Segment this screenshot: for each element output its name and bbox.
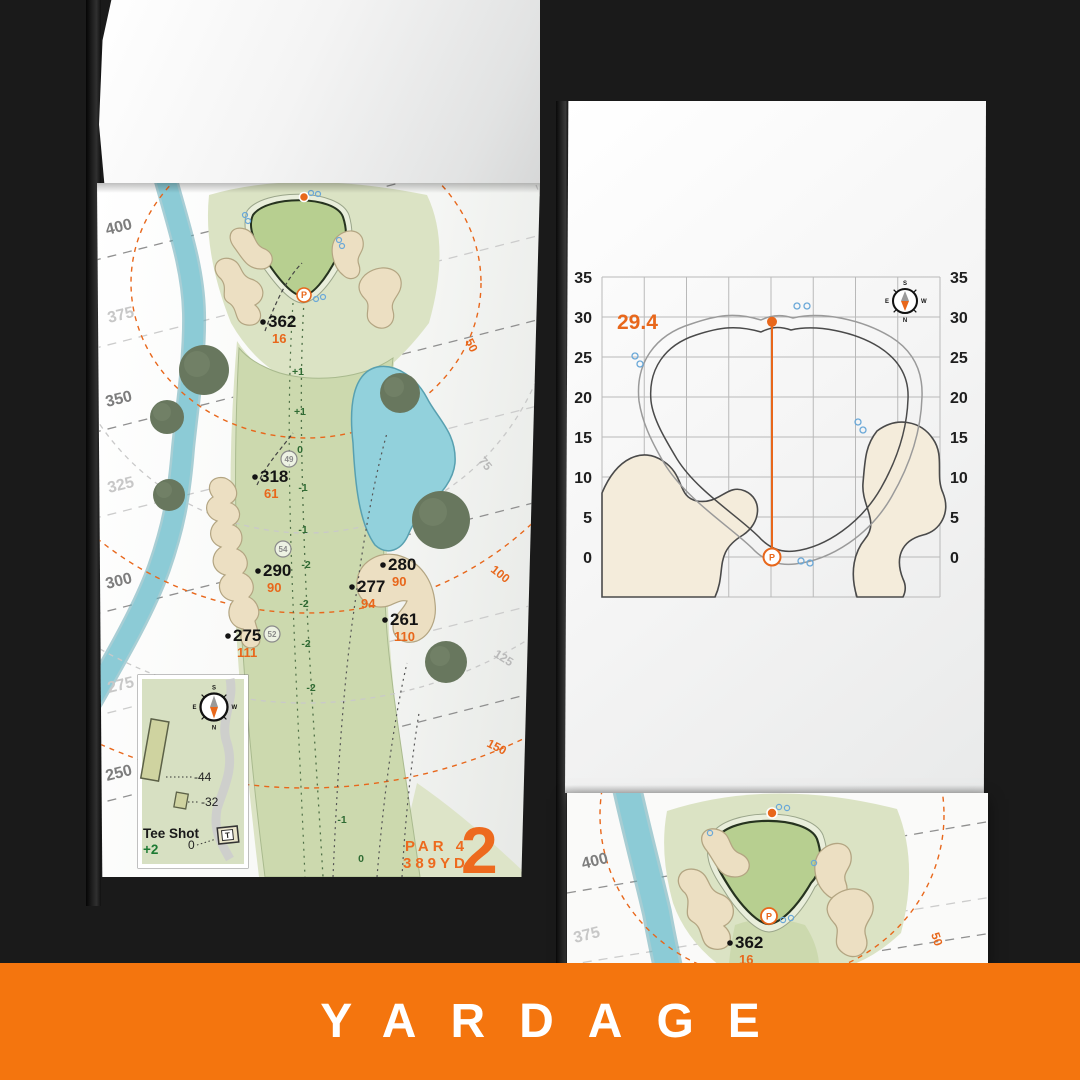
yardage-to-pin: 61 — [264, 486, 278, 501]
yardage-to-green: 318 — [260, 467, 288, 486]
depth-dot — [767, 317, 777, 327]
y-tick-right: 20 — [950, 390, 968, 407]
circled-number-value: 52 — [268, 630, 277, 639]
par-label: PAR 4 — [405, 838, 468, 855]
hole-number: 2 — [461, 813, 498, 877]
yardage-marker-dot — [727, 940, 733, 946]
pin-arc-label-75: 75 — [476, 454, 496, 473]
green-front-marker: P — [761, 908, 777, 924]
tee-mark-back: -44 — [194, 770, 212, 784]
green-front-letter: P — [769, 553, 775, 563]
yardage-to-pin: 90 — [267, 580, 281, 595]
yardage-to-green: 362 — [268, 312, 296, 331]
elevation-label: 0 — [297, 444, 303, 456]
yardage-to-green: 290 — [263, 561, 291, 580]
elevation-label: -1 — [298, 524, 307, 536]
y-tick-right: 0 — [950, 550, 959, 567]
product-image: P 400375350325300275250 5075100125150 +1… — [0, 0, 1080, 1080]
distance-label-375: 375 — [572, 924, 602, 947]
yardage-marker-dot — [252, 474, 258, 480]
yardage-to-green: 261 — [390, 610, 418, 629]
yardage-marker-dot — [380, 562, 386, 568]
y-tick-right: 5 — [950, 510, 959, 527]
compass-tick — [914, 310, 916, 312]
y-tick-right: 15 — [950, 430, 968, 447]
compass-tick — [894, 310, 896, 312]
tee-marker: T — [217, 826, 239, 844]
elevation-label: -1 — [337, 814, 346, 826]
compass-letter: E — [192, 705, 196, 711]
yardage-banner: YARDAGE — [0, 963, 1080, 1080]
elevation-label: +1 — [292, 366, 304, 378]
pin-dot — [300, 193, 309, 202]
green-detail-chart: 3535303025252020151510105500P29.4 SNEW — [565, 101, 986, 793]
y-tick-left: 25 — [574, 350, 592, 367]
yardage-to-pin: 16 — [272, 331, 286, 346]
pin-dot — [767, 808, 777, 818]
y-tick-right: 30 — [950, 310, 968, 327]
green-front-marker: P — [297, 288, 311, 302]
y-tick-left: 5 — [583, 510, 592, 527]
left-book-flipped-page — [99, 0, 540, 183]
next-hole-map: P 4003755036216 — [567, 793, 988, 963]
green-front-letter: P — [301, 290, 307, 300]
left-book-spine — [86, 0, 101, 906]
compass-letter: E — [885, 299, 889, 305]
tee-shot-inset: T -44 -32 0 Tee Shot +2 SNEW — [138, 675, 248, 868]
chart-bunkers — [602, 422, 946, 597]
yardage-to-pin: 16 — [739, 952, 753, 963]
yardage-marker-dot — [255, 568, 261, 574]
yardage-label: 389YD — [403, 855, 469, 872]
y-tick-left: 30 — [574, 310, 592, 327]
yardage-marker-dot — [349, 584, 355, 590]
circled-number-value: 49 — [285, 455, 294, 464]
yardage-to-pin: 94 — [361, 596, 376, 611]
pin-arc-label-150: 150 — [485, 736, 509, 758]
pin-arc-label-125: 125 — [491, 647, 516, 670]
compass-letter: W — [921, 299, 927, 305]
depth-value: 29.4 — [617, 311, 658, 334]
elevation-label: -2 — [306, 682, 315, 694]
elevation-label: -2 — [301, 638, 310, 650]
pin-arc-labels: 5075100125150 — [462, 336, 516, 758]
compass-tick — [894, 290, 896, 292]
hole-map: P 400375350325300275250 5075100125150 +1… — [97, 183, 540, 877]
compass-tick — [914, 290, 916, 292]
tee-box-small — [174, 792, 188, 809]
tee-inset-title: Tee Shot — [143, 826, 200, 841]
hole-map-page: P 400375350325300275250 5075100125150 +1… — [97, 183, 540, 877]
compass-letter: W — [232, 705, 238, 711]
y-tick-right: 25 — [950, 350, 968, 367]
compass-icon: SNEW — [885, 281, 927, 324]
yardage-marker-dot — [260, 319, 266, 325]
distance-label-400: 400 — [580, 850, 610, 873]
y-tick-left: 35 — [574, 270, 592, 287]
elevation-label: 0 — [358, 853, 364, 865]
compass-letter: S — [903, 281, 907, 287]
pin-arc-label-100: 100 — [488, 562, 513, 586]
next-hole-map-page: P 4003755036216 — [567, 793, 988, 963]
green-front-letter: P — [766, 912, 772, 922]
yardage-to-green: 275 — [233, 626, 261, 645]
y-tick-right: 35 — [950, 270, 968, 287]
green-detail-page: 3535303025252020151510105500P29.4 SNEW — [565, 101, 986, 793]
circled-number-value: 54 — [279, 545, 288, 554]
yardage-to-pin: 111 — [237, 645, 257, 660]
stream — [97, 183, 194, 719]
compass-letter: N — [903, 318, 907, 324]
yardage-to-pin: 110 — [394, 629, 415, 644]
y-tick-left: 0 — [583, 550, 592, 567]
distance-label-375: 375 — [106, 304, 136, 327]
tee-mark-mid: -32 — [201, 795, 219, 809]
yardage-to-green: 362 — [735, 933, 763, 952]
y-tick-left: 10 — [574, 470, 592, 487]
distance-label-300: 300 — [104, 570, 134, 593]
pin-arc-label-50: 50 — [928, 931, 946, 948]
banner-label: YARDAGE — [320, 994, 794, 1049]
y-tick-right: 10 — [950, 470, 968, 487]
compass-letter: N — [212, 726, 216, 732]
yardage-to-green: 277 — [357, 577, 385, 596]
elevation-label: +1 — [294, 406, 306, 418]
tee-distance-labels: 400375350325300275250 — [104, 216, 136, 785]
elevation-label: -2 — [301, 559, 310, 571]
yardage-to-green: 280 — [388, 555, 416, 574]
elevation-label: -2 — [299, 598, 308, 610]
distance-label-250: 250 — [104, 762, 134, 785]
stream — [627, 793, 668, 963]
yardage-to-pin: 90 — [392, 574, 406, 589]
y-tick-left: 15 — [574, 430, 592, 447]
elevation-label: -1 — [298, 482, 307, 494]
distance-label-325: 325 — [106, 474, 136, 497]
distance-label-350: 350 — [104, 388, 134, 411]
compass-letter: S — [212, 686, 216, 692]
distance-label-400: 400 — [104, 216, 134, 239]
yardage-marker-dot — [225, 633, 231, 639]
tee-shot-score: +2 — [143, 842, 158, 857]
y-tick-left: 20 — [574, 390, 592, 407]
yardage-marker-dot — [382, 617, 388, 623]
